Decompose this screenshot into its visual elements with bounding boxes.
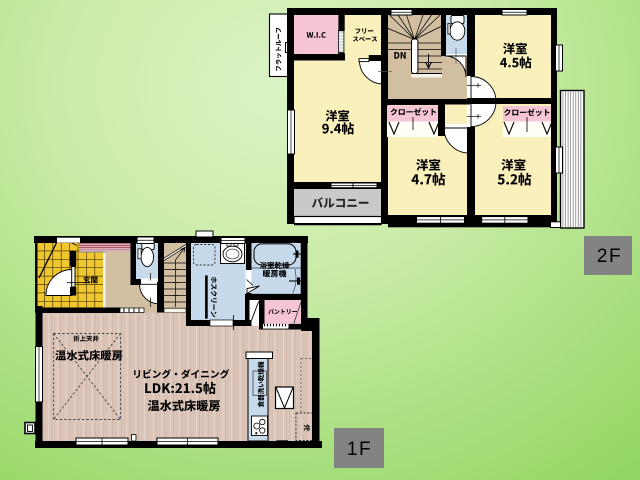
- svg-text:1F: 1F: [347, 439, 372, 460]
- svg-text:2F: 2F: [597, 246, 622, 267]
